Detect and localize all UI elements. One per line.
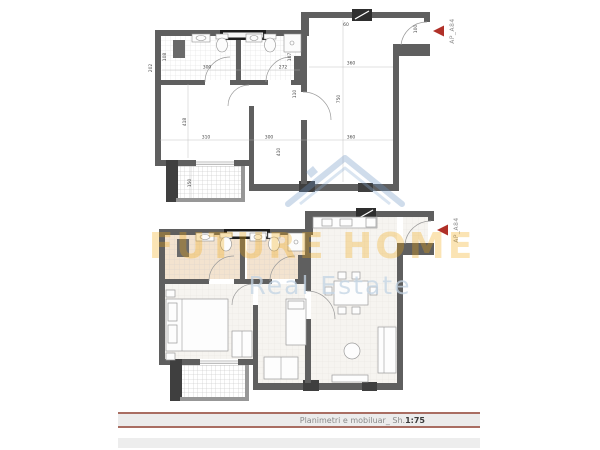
tv-stand xyxy=(332,375,368,382)
pillow xyxy=(168,325,177,343)
sink-icon xyxy=(322,219,332,226)
dim-label: 300 xyxy=(203,65,212,71)
pillow xyxy=(168,303,177,321)
dim-label: 202 xyxy=(148,64,154,73)
floor-plan-sheet: AP_A84 202 300 272 108 107 110 60 100 36… xyxy=(0,0,600,450)
dim-label: 150 xyxy=(187,179,193,188)
dim-label: 418 xyxy=(182,118,188,127)
scale-prefix: Sh. xyxy=(392,416,405,425)
scale-value: 1:75 xyxy=(405,416,425,425)
dim-label: 60 xyxy=(343,22,349,28)
pillow xyxy=(288,301,304,309)
nightstand xyxy=(166,353,175,360)
footer-band xyxy=(118,438,480,448)
dim-label: 750 xyxy=(336,95,342,104)
sofa xyxy=(378,327,396,373)
dim-label: 108 xyxy=(162,53,168,62)
dim-label: 410 xyxy=(276,148,282,157)
dim-label: 310 xyxy=(202,135,211,141)
side-table xyxy=(344,343,360,359)
dim-label: 300 xyxy=(265,135,274,141)
dim-label: 110 xyxy=(292,90,298,99)
dim-label: 100 xyxy=(413,25,419,34)
dim-label: 360 xyxy=(347,61,356,67)
plan-top: 202 300 272 108 107 110 60 100 360 750 3… xyxy=(148,9,456,202)
title-bar: Planimetri e mobiluar_ Sh.1:75 xyxy=(118,412,480,428)
dim-label: 272 xyxy=(279,65,288,71)
watermark-brand: FUTURE HOME xyxy=(149,226,476,267)
watermark-tagline: Real Estate xyxy=(249,271,412,300)
stove-icon xyxy=(340,219,352,226)
dim-label: 360 xyxy=(347,135,356,141)
floor-plan-drawing: AP_A84 202 300 272 108 107 110 60 100 36… xyxy=(0,0,600,450)
sheet-title: Planimetri e mobiluar_ Sh.1:75 xyxy=(300,416,480,425)
dim-label: 107 xyxy=(287,53,293,62)
plan-title: Planimetri e mobiluar_ xyxy=(300,416,390,425)
chair xyxy=(338,307,346,314)
nightstand xyxy=(166,290,175,297)
chair xyxy=(352,307,360,314)
